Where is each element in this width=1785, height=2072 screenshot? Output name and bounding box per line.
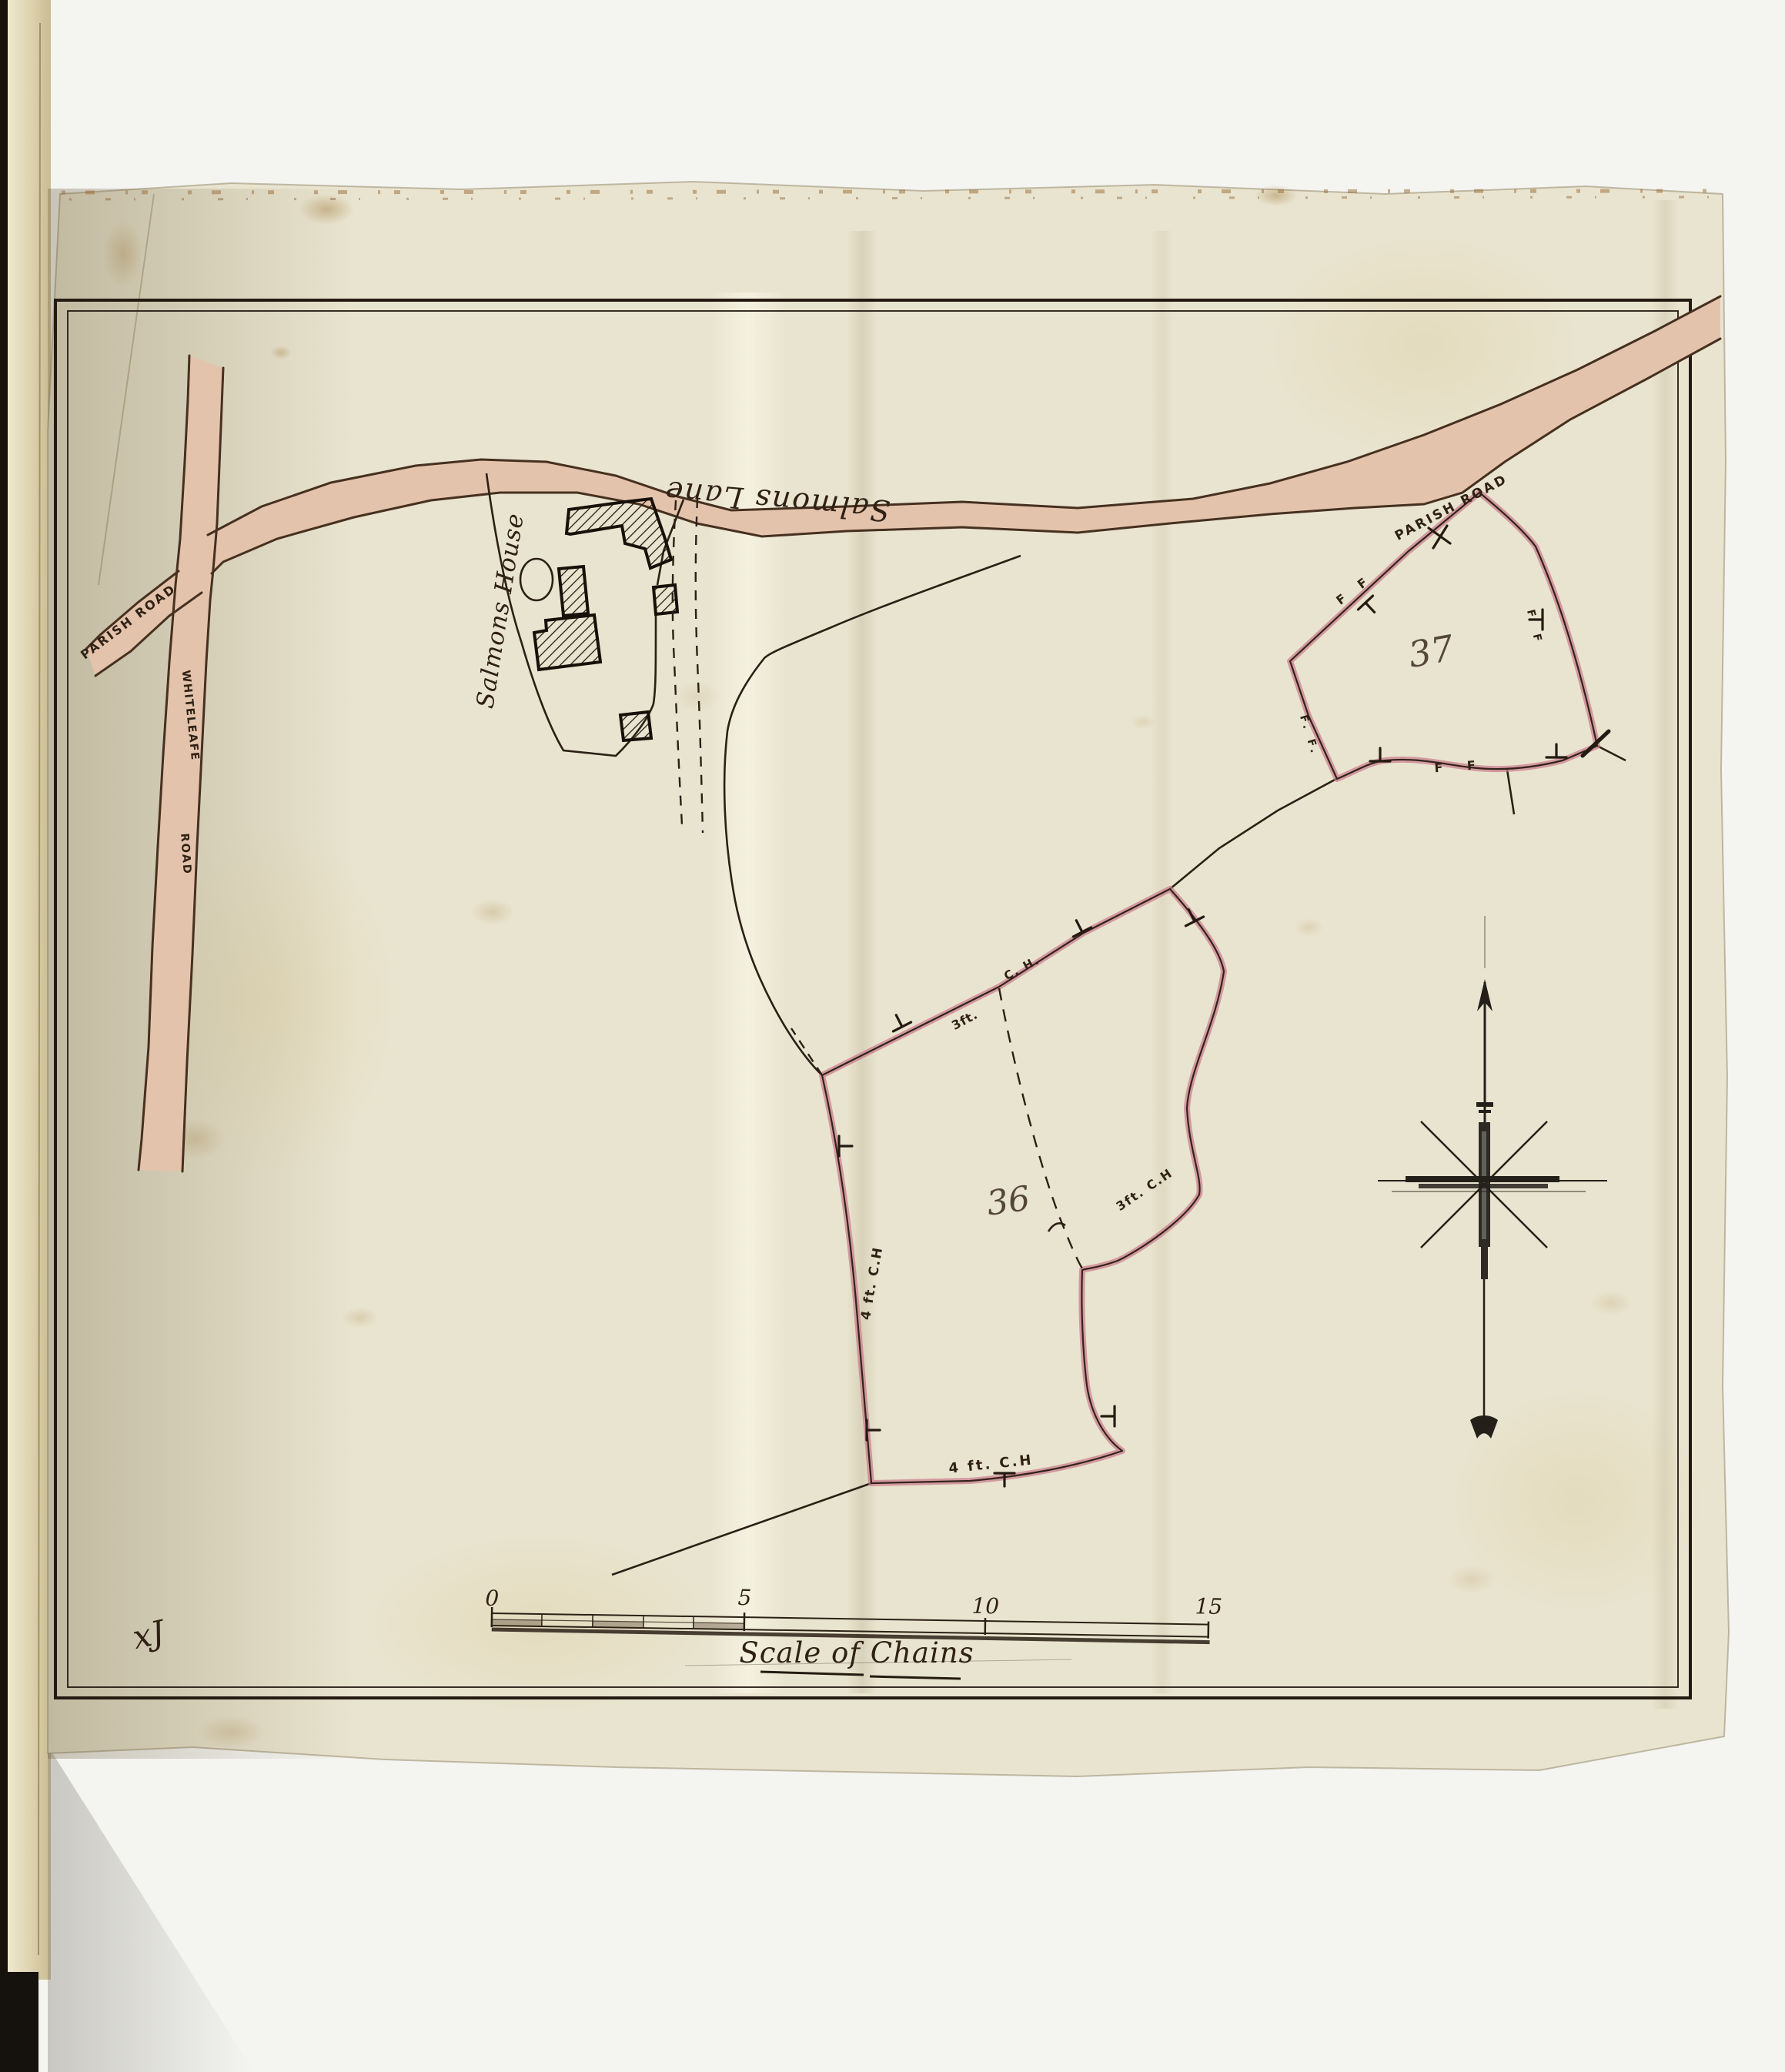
fold-shadow-2 [1151, 231, 1174, 1693]
scale-tick-10: 10 [971, 1593, 999, 1619]
map-canvas: PARISH ROAD WHITELEAFE ROAD Salmons Lane… [0, 0, 1785, 2072]
underlying-page-edge [8, 0, 51, 1980]
scale-tick-5: 5 [737, 1585, 751, 1610]
building-small-rect [559, 566, 588, 616]
building-south-square [620, 712, 651, 740]
binding-foot [0, 1972, 38, 2072]
scale-tick-0: 0 [485, 1586, 499, 1611]
parcel-37-number: 37 [1406, 627, 1458, 675]
building-east-square [653, 585, 677, 614]
parcel-36-number: 36 [984, 1178, 1033, 1223]
scale-tick-15: 15 [1195, 1593, 1222, 1619]
scanned-map-page: PARISH ROAD WHITELEAFE ROAD Salmons Lane… [0, 0, 1785, 2072]
